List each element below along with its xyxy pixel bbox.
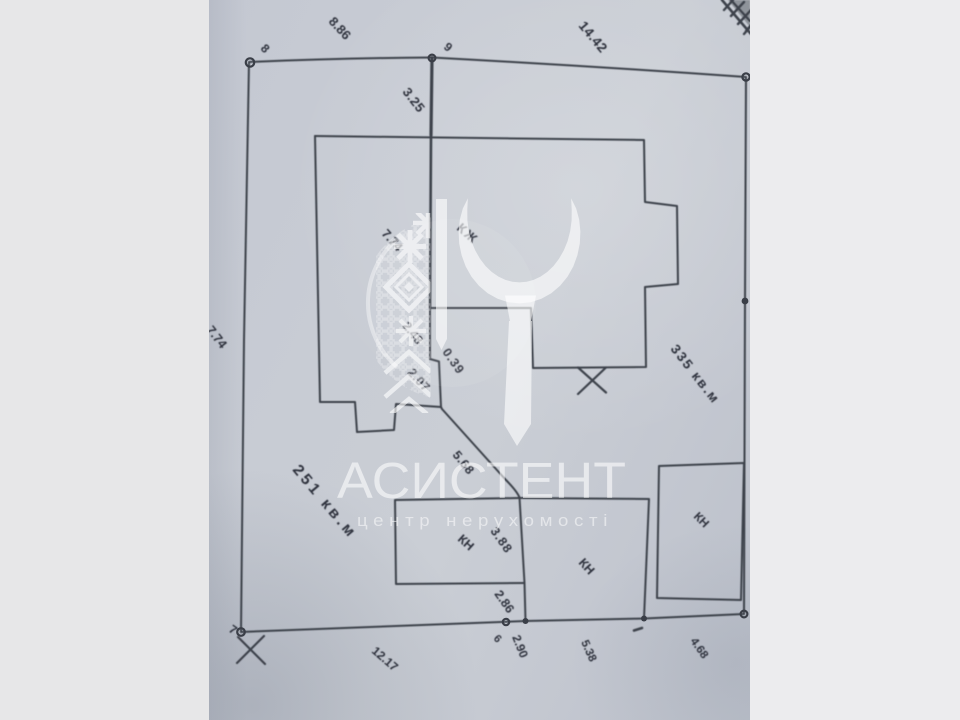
svg-text:АСИСТЕНТ: АСИСТЕНТ	[337, 452, 626, 509]
svg-text:7.74: 7.74	[204, 323, 230, 351]
svg-text:4.68: 4.68	[688, 636, 711, 662]
svg-text:КН: КН	[576, 556, 598, 578]
svg-text:5.38: 5.38	[578, 638, 598, 664]
svg-text:12.17: 12.17	[369, 644, 401, 674]
svg-text:9: 9	[441, 40, 455, 55]
svg-text:центр нерухомості: центр нерухомості	[357, 512, 613, 530]
svg-text:КН: КН	[455, 532, 477, 554]
svg-text:14.42: 14.42	[576, 18, 611, 55]
svg-text:3.25: 3.25	[400, 85, 429, 116]
svg-text:2.90: 2.90	[509, 633, 531, 660]
svg-text:6: 6	[491, 633, 504, 646]
svg-text:КН: КН	[691, 509, 712, 530]
svg-text:8.86: 8.86	[326, 14, 354, 43]
svg-text:8: 8	[258, 41, 273, 56]
svg-text:2.86: 2.86	[492, 588, 517, 616]
svg-text:335 кв.м: 335 кв.м	[668, 342, 724, 407]
